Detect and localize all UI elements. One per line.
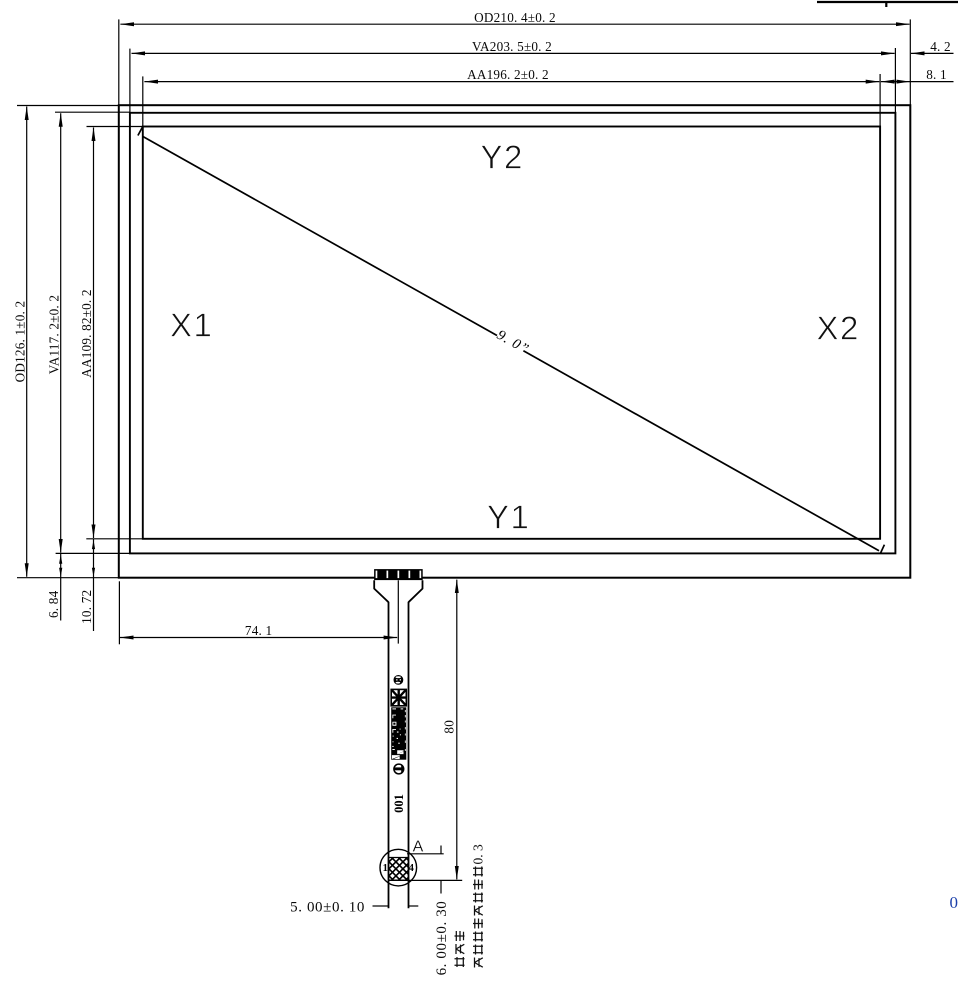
- svg-text:Y2: Y2: [481, 139, 524, 176]
- svg-text:Y1: Y1: [487, 499, 530, 536]
- svg-text:6. 84: 6. 84: [46, 590, 61, 618]
- svg-text:OD126. 1±0. 2: OD126. 1±0. 2: [12, 301, 27, 383]
- svg-text:80: 80: [442, 720, 457, 734]
- svg-text:1: 1: [383, 863, 388, 874]
- svg-text:9. 0”: 9. 0”: [494, 327, 532, 358]
- svg-text:0. 3: 0. 3: [471, 844, 486, 865]
- svg-text:5. 00±0. 10: 5. 00±0. 10: [290, 900, 365, 916]
- svg-text:8. 1: 8. 1: [926, 67, 947, 82]
- svg-text:74. 1: 74. 1: [245, 623, 272, 638]
- svg-text:0: 0: [950, 893, 958, 912]
- svg-text:001: 001: [392, 794, 406, 813]
- svg-text:X2: X2: [817, 310, 860, 347]
- svg-text:X1: X1: [170, 307, 213, 344]
- svg-text:VA203. 5±0. 2: VA203. 5±0. 2: [472, 39, 552, 54]
- svg-text:AA109. 82±0. 2: AA109. 82±0. 2: [79, 289, 94, 377]
- svg-text:A: A: [413, 839, 424, 856]
- svg-text:4. 2: 4. 2: [930, 39, 951, 54]
- svg-text:4: 4: [409, 863, 415, 874]
- svg-text:AA196. 2±0. 2: AA196. 2±0. 2: [467, 67, 549, 82]
- svg-text:VA117. 2±0. 2: VA117. 2±0. 2: [46, 295, 61, 374]
- svg-text:OD210. 4±0. 2: OD210. 4±0. 2: [474, 10, 556, 25]
- svg-text:6. 00±0. 30: 6. 00±0. 30: [434, 901, 450, 976]
- svg-text:10. 72: 10. 72: [79, 590, 94, 624]
